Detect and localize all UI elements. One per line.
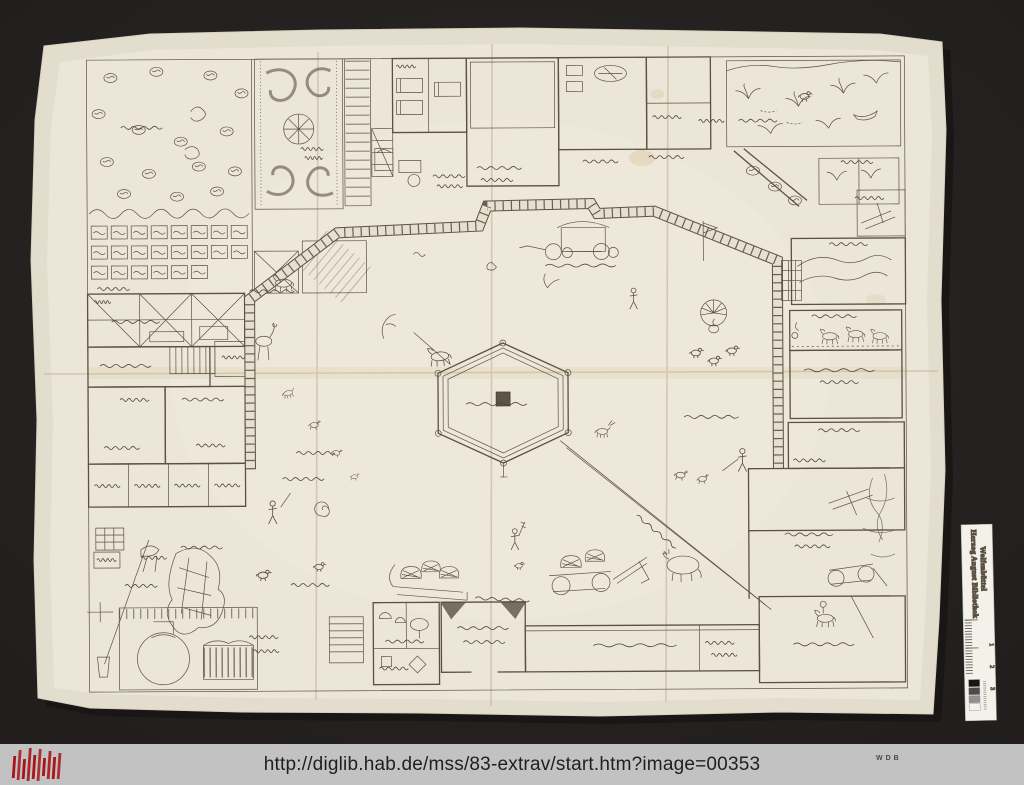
ruler-number-1: 1 bbox=[988, 643, 994, 646]
citation-bar: http://diglib.hab.de/mss/83-extrav/start… bbox=[0, 744, 1024, 785]
ruler-institution-line2: Wolfenbüttel bbox=[979, 546, 989, 591]
citation-url: http://diglib.hab.de/mss/83-extrav/start… bbox=[0, 744, 1024, 785]
wdb-label: WDB bbox=[876, 755, 902, 762]
color-calibration-ruler: Herzog August Bibliothek Wolfenbüttel 1 … bbox=[961, 524, 996, 721]
manuscript-scan-photo: Herzog August Bibliothek Wolfenbüttel 1 … bbox=[0, 0, 1024, 744]
ruler-number-3: 3 bbox=[989, 687, 995, 690]
scan-viewer-page: Herzog August Bibliothek Wolfenbüttel 1 … bbox=[0, 0, 1024, 785]
ruler-number-2: 2 bbox=[988, 665, 994, 668]
hexagon-center-marker bbox=[496, 392, 510, 406]
